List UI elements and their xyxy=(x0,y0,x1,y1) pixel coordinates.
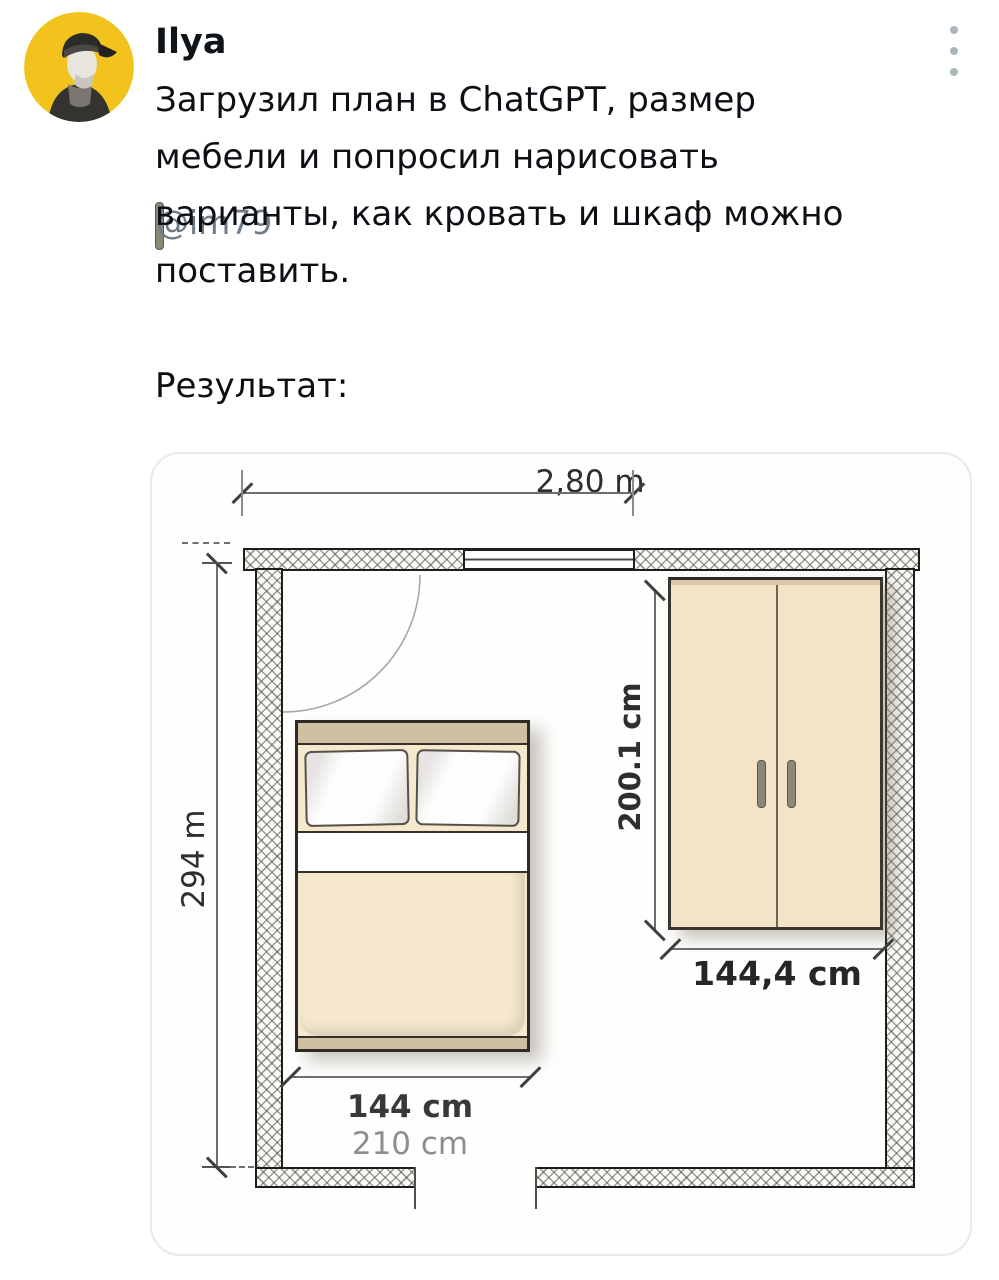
author-row: Ilya @im79 xyxy=(155,22,226,62)
wardrobe xyxy=(668,577,883,930)
extension-line xyxy=(241,470,243,516)
wall-right xyxy=(885,568,915,1187)
tweet-text: Загрузил план в ChatGPT, размер мебели и… xyxy=(155,72,965,300)
floorplan: 2,80 m 294 m xyxy=(152,454,970,1254)
tweet-text-line: поставить. xyxy=(155,243,965,300)
room-width-label: 2,80 m xyxy=(420,464,760,500)
wall-top-right-segment xyxy=(633,548,920,571)
wardrobe-handle-left xyxy=(757,760,766,808)
bed-pillows xyxy=(298,745,527,831)
bed-duvet xyxy=(300,873,525,1036)
tweet-screenshot: Ilya @im79 Загрузил план в ChatGPT, разм… xyxy=(0,0,999,1280)
avatar[interactable] xyxy=(24,12,134,122)
wall-left xyxy=(255,568,283,1187)
wardrobe-width-dimension-line xyxy=(670,948,883,950)
bed xyxy=(295,720,530,1052)
author-name[interactable]: Ilya xyxy=(155,22,226,62)
tick-mark xyxy=(202,562,232,564)
room-height-dimension-line xyxy=(216,563,218,1167)
bed-footboard xyxy=(298,1036,527,1049)
wardrobe-width-label: 144,4 cm xyxy=(677,954,877,993)
door-jamb xyxy=(414,1167,416,1209)
bed-width-dimension-line xyxy=(290,1076,530,1078)
room-width-dimension-line xyxy=(242,492,634,494)
wardrobe-height-label: 200.1 cm xyxy=(613,657,647,857)
extension-line xyxy=(632,470,634,516)
bed-width-label: 144 cm xyxy=(290,1089,530,1125)
kebab-dot xyxy=(950,47,958,55)
kebab-dot xyxy=(950,26,958,34)
bed-length-label: 210 cm xyxy=(290,1126,530,1162)
pillow-right xyxy=(415,749,520,827)
bed-headboard xyxy=(298,723,527,745)
wardrobe-handle-right xyxy=(787,760,796,808)
man-in-cap-avatar-icon xyxy=(24,12,134,122)
tweet-text-line: Загрузил план в ChatGPT, размер xyxy=(155,72,965,129)
more-options-button[interactable] xyxy=(944,26,964,76)
dashed-tick xyxy=(230,1166,254,1168)
tweet-text-line: мебели и попросил нарисовать xyxy=(155,129,965,186)
room-height-label: 294 m xyxy=(176,759,212,959)
wall-bottom-right-segment xyxy=(535,1167,915,1188)
wall-bottom-left-segment xyxy=(255,1167,416,1188)
dashed-tick xyxy=(182,542,230,544)
door-jamb xyxy=(535,1167,537,1209)
window xyxy=(465,548,633,571)
tick-mark xyxy=(202,1166,232,1168)
pillow-left xyxy=(304,749,410,827)
result-label: Результат: xyxy=(155,366,348,406)
bed-sheet-fold xyxy=(298,831,527,873)
wardrobe-height-dimension-line xyxy=(654,590,656,930)
tweet-text-line: варианты, как кровать и шкаф можно xyxy=(155,186,965,243)
floorplan-image[interactable]: 2,80 m 294 m xyxy=(150,452,972,1256)
